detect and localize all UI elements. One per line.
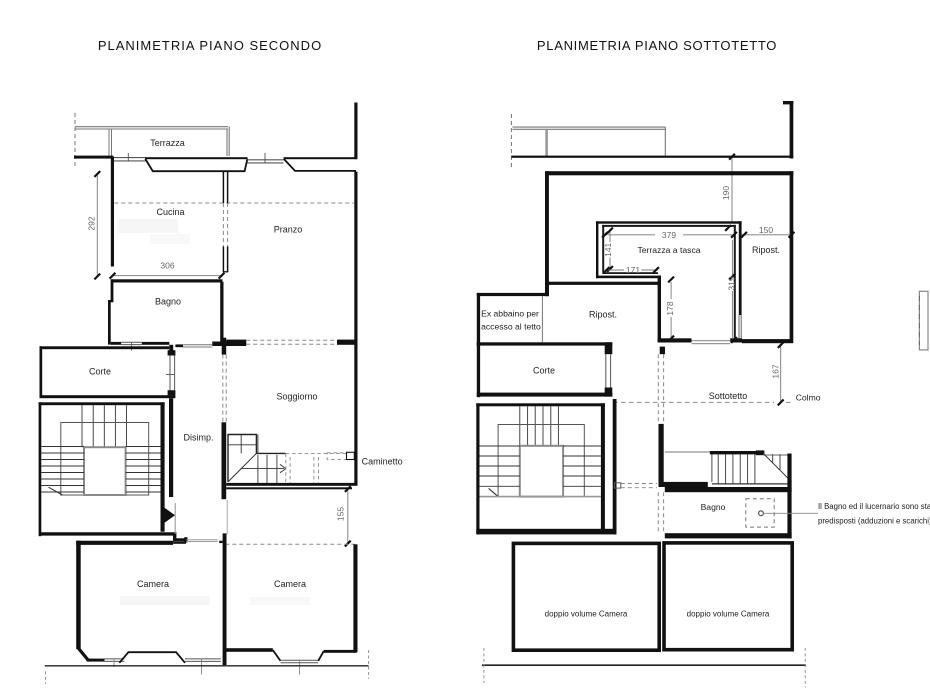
svg-text:Disimp.: Disimp. xyxy=(183,433,213,443)
svg-text:167: 167 xyxy=(771,364,781,378)
svg-text:Corte: Corte xyxy=(533,366,555,376)
svg-text:Ripost.: Ripost. xyxy=(589,310,617,320)
svg-text:Soggiorno: Soggiorno xyxy=(276,392,317,402)
svg-text:178: 178 xyxy=(665,301,675,315)
svg-text:379: 379 xyxy=(662,230,676,240)
svg-text:PLANIMETRIA PIANO SOTTOTETTO: PLANIMETRIA PIANO SOTTOTETTO xyxy=(537,38,777,53)
svg-text:292: 292 xyxy=(87,216,97,230)
svg-text:Bagno: Bagno xyxy=(155,297,181,307)
svg-text:PLANIMETRIA PIANO SECONDO: PLANIMETRIA PIANO SECONDO xyxy=(98,38,322,53)
svg-text:Il Bagno ed il lucernario sono: Il Bagno ed il lucernario sono stati xyxy=(818,502,930,511)
svg-text:Terrazza: Terrazza xyxy=(150,138,185,148)
svg-text:Cucina: Cucina xyxy=(156,207,184,217)
svg-text:141: 141 xyxy=(603,242,613,256)
svg-text:171: 171 xyxy=(626,265,640,275)
svg-text:Ripost.: Ripost. xyxy=(752,245,780,255)
svg-text:Ex abbaino per: Ex abbaino per xyxy=(481,309,539,319)
svg-text:Colmo: Colmo xyxy=(796,392,821,402)
svg-text:doppio volume Camera: doppio volume Camera xyxy=(687,610,770,619)
svg-text:Caminetto: Caminetto xyxy=(362,457,403,467)
svg-text:accesso al tetto: accesso al tetto xyxy=(481,322,541,332)
svg-text:doppio volume Camera: doppio volume Camera xyxy=(545,610,628,619)
svg-text:Sottotetto: Sottotetto xyxy=(709,391,748,401)
svg-text:306: 306 xyxy=(160,261,174,271)
svg-text:150: 150 xyxy=(759,225,773,235)
svg-text:Camera: Camera xyxy=(274,579,306,589)
svg-text:predisposti (adduzioni e scari: predisposti (adduzioni e scarichi) xyxy=(818,517,930,526)
svg-text:Bagno: Bagno xyxy=(701,502,726,512)
svg-text:Pranzo: Pranzo xyxy=(274,225,303,235)
svg-text:Terrazza a tasca: Terrazza a tasca xyxy=(637,245,700,255)
svg-text:319: 319 xyxy=(727,276,737,290)
svg-text:Corte: Corte xyxy=(89,367,111,377)
svg-text:155: 155 xyxy=(336,507,346,521)
svg-text:Camera: Camera xyxy=(137,579,169,589)
svg-text:190: 190 xyxy=(721,186,731,200)
